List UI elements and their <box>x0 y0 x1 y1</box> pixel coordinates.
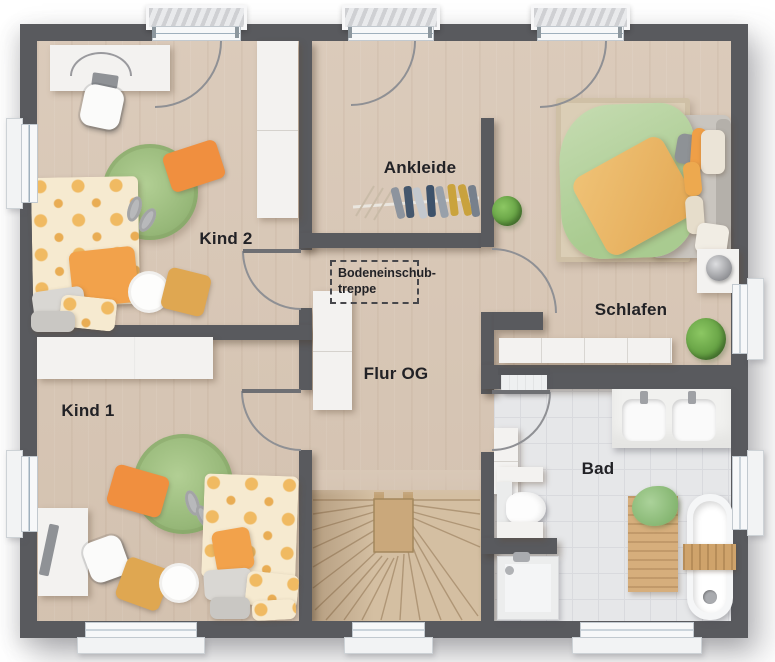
wall-kind2-east <box>299 41 312 250</box>
window-sill <box>77 637 205 654</box>
window-west-kind2 <box>21 124 38 203</box>
wall-stub-schlafen-door <box>494 312 543 330</box>
window-sill <box>747 278 764 360</box>
pillow <box>31 311 75 332</box>
stair-newel-post <box>374 499 413 552</box>
window-south-kind1 <box>85 622 197 638</box>
window-west-kind1 <box>21 456 38 532</box>
wall-bad-west <box>481 452 494 621</box>
wall-kind1-east <box>299 450 312 621</box>
sink-basin <box>672 399 716 441</box>
plant-icon <box>492 196 522 226</box>
green-towel <box>632 486 678 526</box>
wardrobe <box>313 291 352 410</box>
window-east-schlafen <box>732 284 748 354</box>
room-label-flur: Flur OG <box>364 364 429 384</box>
window-sill <box>747 450 764 536</box>
plant-icon <box>686 318 726 360</box>
bath-caddy <box>683 544 736 570</box>
pillow <box>701 130 725 174</box>
pillow <box>252 599 297 621</box>
window-east-bad <box>732 456 748 530</box>
attic-hatch-line2: treppe <box>338 281 417 297</box>
pillow <box>682 161 702 197</box>
wall-ankleide-south <box>299 233 481 248</box>
toilet-bowl <box>506 492 546 525</box>
towel-rail <box>498 368 550 375</box>
room-label-kind2: Kind 2 <box>199 229 252 249</box>
sideboard <box>37 337 213 379</box>
floor-plan: Kind 2 Ankleide Schlafen Flur OG Kind 1 … <box>0 0 775 662</box>
window-north-kind2 <box>152 26 241 41</box>
room-label-bad: Bad <box>582 459 615 479</box>
window-south-bad <box>580 622 694 638</box>
winder-staircase <box>312 470 481 621</box>
room-label-ankleide: Ankleide <box>384 158 456 178</box>
tub-faucet-icon <box>703 590 717 604</box>
table-lamp-icon <box>706 255 732 281</box>
sideboard <box>499 338 672 363</box>
window-sill <box>572 637 702 654</box>
wall-schlafen-west-upper <box>481 118 494 247</box>
sink-basin <box>622 399 666 441</box>
shower-head-icon <box>513 552 530 562</box>
window-sill <box>344 637 433 654</box>
wc-partition <box>497 467 543 482</box>
room-label-schlafen: Schlafen <box>595 300 667 320</box>
faucet-icon <box>640 391 648 404</box>
wall-center-mid <box>299 308 312 390</box>
bed-throw <box>211 526 256 574</box>
window-north-ankleide <box>348 26 434 41</box>
faucet-icon <box>688 391 696 404</box>
wc-partition <box>497 522 543 538</box>
side-table <box>162 566 196 600</box>
shower-drain-icon <box>505 566 514 575</box>
window-south-stairs <box>352 622 425 638</box>
room-label-kind1: Kind 1 <box>61 401 114 421</box>
wardrobe <box>257 41 298 218</box>
attic-hatch-line1: Bodeneinschub- <box>338 265 417 281</box>
attic-hatch-annotation: Bodeneinschub- treppe <box>330 260 419 304</box>
pillow <box>210 597 250 619</box>
window-north-schlafen <box>537 26 624 41</box>
